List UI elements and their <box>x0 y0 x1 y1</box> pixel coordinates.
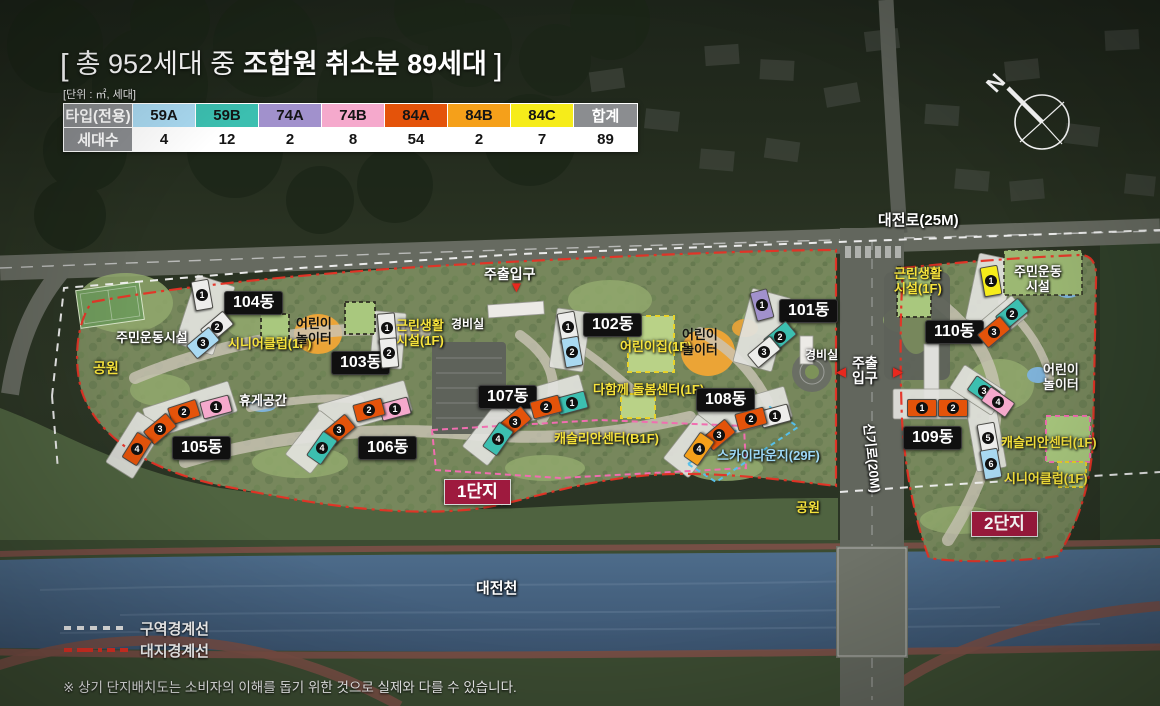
kids-playground2-line1: 어린이 <box>682 327 718 342</box>
unit-number: 2 <box>383 347 395 359</box>
caslian-center-b1-label: 캐슬리안센터(B1F) <box>554 428 659 447</box>
unit-number: 3 <box>154 423 166 435</box>
unit-number: 3 <box>509 416 521 428</box>
daycare-label: 어린이집(1F) <box>620 336 692 355</box>
legend-zone-row: 구역경계선 <box>64 617 209 639</box>
neighborhood-line1: 근린생활 <box>396 318 444 333</box>
count-84B: 2 <box>448 128 511 152</box>
entrance-arrow-down-icon: ▼ <box>509 280 524 295</box>
unit-number: 1 <box>756 299 768 311</box>
kids-playground-label-1: 어린이 놀이터 <box>296 316 332 346</box>
unit-number: 3 <box>988 326 1000 338</box>
type-cell-59A: 59A <box>133 104 196 128</box>
unit-number: 1 <box>985 275 997 287</box>
kids-playground-line1: 어린이 <box>296 316 332 331</box>
unit-number: 4 <box>693 443 705 455</box>
road-label-daejeonro: 대전로(25M) <box>878 209 959 230</box>
type-cell-74A: 74A <box>259 104 322 128</box>
river-label: 대전천 <box>476 577 517 598</box>
building-label-108: 108동 <box>696 388 755 412</box>
unit-number: 2 <box>1006 308 1018 320</box>
unit-number: 2 <box>745 413 757 425</box>
unit-number: 2 <box>774 331 786 343</box>
page-title: [총 952세대 중조합원 취소분 89세대] <box>53 42 509 81</box>
sports-facility-label-1: 주민운동시설 <box>116 327 188 346</box>
unit-number: 4 <box>492 433 504 445</box>
kids-playground2-line2: 놀이터 <box>682 342 718 357</box>
kids-playground-label-2: 어린이 놀이터 <box>682 327 718 357</box>
type-row: 타입(전용) 59A 59B 74A 74B 84A 84B 84C 합계 <box>64 104 638 128</box>
unit-number: 1 <box>562 321 574 333</box>
neighborhood-line2: 시설(1F) <box>396 333 444 348</box>
unit-number: 6 <box>985 458 997 470</box>
unit-number: 2 <box>947 402 959 414</box>
unit-number: 3 <box>333 424 345 436</box>
type-cell-84B: 84B <box>448 104 511 128</box>
count-59B: 12 <box>196 128 259 152</box>
unit-number: 1 <box>566 397 578 409</box>
unit-note: [단위 : ㎡, 세대] <box>63 86 136 102</box>
kids-playground3-line1: 어린이 <box>1043 362 1079 377</box>
unit-number: 3 <box>758 346 770 358</box>
guard-office-label-center: 경비실 <box>451 315 484 332</box>
tennis-court <box>76 282 145 329</box>
unit-number: 1 <box>769 410 781 422</box>
count-59A: 4 <box>133 128 196 152</box>
unit-number: 5 <box>982 432 994 444</box>
zone-boundary-sample-icon <box>64 625 128 631</box>
kids-playground-line2: 놀이터 <box>296 331 332 346</box>
unit-number: 4 <box>316 442 328 454</box>
entrance-arrow-right-icon: ▶ <box>893 364 903 379</box>
sports2-line1: 주민운동 <box>1014 264 1062 279</box>
building-label-107: 107동 <box>478 385 537 409</box>
unit-number: 3 <box>197 337 209 349</box>
type-header-cell: 타입(전용) <box>64 104 133 128</box>
building-103-unit-2: 2 <box>379 337 400 368</box>
type-cell-74B: 74B <box>322 104 385 128</box>
site-plan-page: [총 952세대 중조합원 취소분 89세대] [단위 : ㎡, 세대] 타입(… <box>0 0 1160 706</box>
count-header-cell: 세대수 <box>64 128 133 152</box>
complex2-badge: 2단지 <box>971 511 1038 537</box>
rest-area-label: 휴게공간 <box>239 390 287 409</box>
building-label-102: 102동 <box>583 313 642 337</box>
compass-north-label: N <box>981 69 1010 98</box>
building-label-104: 104동 <box>224 291 283 315</box>
legend-site-row: 대지경계선 <box>64 639 209 661</box>
neighborhood-facility-label-2: 근린생활 시설(1F) <box>894 266 942 296</box>
sports-facility-label-2: 주민운동 시설 <box>1014 264 1062 294</box>
guard-office-label-right: 경비실 <box>805 346 838 363</box>
neighborhood2-line1: 근린생활 <box>894 266 942 281</box>
legend: 구역경계선 대지경계선 <box>64 617 209 661</box>
type-cell-84A: 84A <box>385 104 448 128</box>
unit-number: 4 <box>992 396 1004 408</box>
unit-number: 2 <box>178 406 190 418</box>
neighborhood2-line2: 시설(1F) <box>894 281 942 296</box>
kids-playground-label-3: 어린이 놀이터 <box>1043 362 1079 392</box>
compass-needle <box>1008 88 1042 122</box>
entrance-arrow-left-icon: ◀ <box>836 364 846 379</box>
park-label-left: 공원 <box>93 358 119 378</box>
total-header-cell: 합계 <box>574 104 638 128</box>
entrance-line1: 주출 <box>852 356 878 371</box>
count-84A: 54 <box>385 128 448 152</box>
title-normal: 총 952세대 중 <box>76 49 235 79</box>
unit-number: 2 <box>566 346 578 358</box>
building-label-110: 110동 <box>925 320 984 344</box>
unit-number: 1 <box>210 401 222 413</box>
caslian-center-1f-label: 캐슬리안센터(1F) <box>1001 432 1097 451</box>
unit-number: 1 <box>381 322 393 334</box>
legend-zone-label: 구역경계선 <box>140 618 209 639</box>
building-109-unit-2: 2 <box>938 399 968 417</box>
bracket-close: ] <box>494 47 503 82</box>
count-row: 세대수 4 12 2 8 54 2 7 89 <box>64 128 638 152</box>
building-label-109: 109동 <box>903 426 962 450</box>
count-total: 89 <box>574 128 638 152</box>
entrance-line2: 입구 <box>852 371 878 386</box>
bracket-open: [ <box>60 47 69 82</box>
count-74B: 8 <box>322 128 385 152</box>
park-label-bottom: 공원 <box>796 497 820 516</box>
unit-number: 2 <box>540 401 552 413</box>
compass: N <box>978 66 1096 175</box>
unit-number: 1 <box>916 402 928 414</box>
title-bold: 조합원 취소분 89세대 <box>243 49 487 79</box>
type-cell-84C: 84C <box>511 104 574 128</box>
bridge <box>836 546 908 658</box>
unit-number: 1 <box>196 289 208 301</box>
disclaimer-note: ※ 상기 단지배치도는 소비자의 이해를 돕기 위한 것으로 실제와 다를 수 … <box>63 676 517 696</box>
building-label-106: 106동 <box>358 436 417 460</box>
neighborhood-facility-label-1: 근린생활 시설(1F) <box>396 318 444 348</box>
field-right <box>1100 235 1160 565</box>
unit-number: 3 <box>713 429 725 441</box>
building-label-105: 105동 <box>172 436 231 460</box>
building-109-unit-1: 1 <box>907 399 937 417</box>
complex1-badge: 1단지 <box>444 479 511 505</box>
count-84C: 7 <box>511 128 574 152</box>
type-cell-59B: 59B <box>196 104 259 128</box>
site-boundary-sample-icon <box>64 647 128 653</box>
legend-site-label: 대지경계선 <box>140 640 209 661</box>
unit-number: 4 <box>131 443 143 455</box>
kids-playground3-line2: 놀이터 <box>1043 377 1079 392</box>
unit-table: 타입(전용) 59A 59B 74A 74B 84A 84B 84C 합계 세대… <box>63 103 638 152</box>
unit-number: 1 <box>389 403 401 415</box>
senior-club-label-2: 시니어클럽(1F) <box>1004 468 1088 487</box>
sky-lounge-label: 스카이라운지(29F) <box>717 445 820 464</box>
main-entrance-label-mid: 주출 입구 <box>852 356 878 386</box>
sports2-line2: 시설 <box>1026 279 1050 294</box>
building-label-101: 101동 <box>779 299 838 323</box>
care-center-label: 다함께 돌봄센터(1F) <box>593 379 704 398</box>
count-74A: 2 <box>259 128 322 152</box>
unit-number: 2 <box>363 404 375 416</box>
